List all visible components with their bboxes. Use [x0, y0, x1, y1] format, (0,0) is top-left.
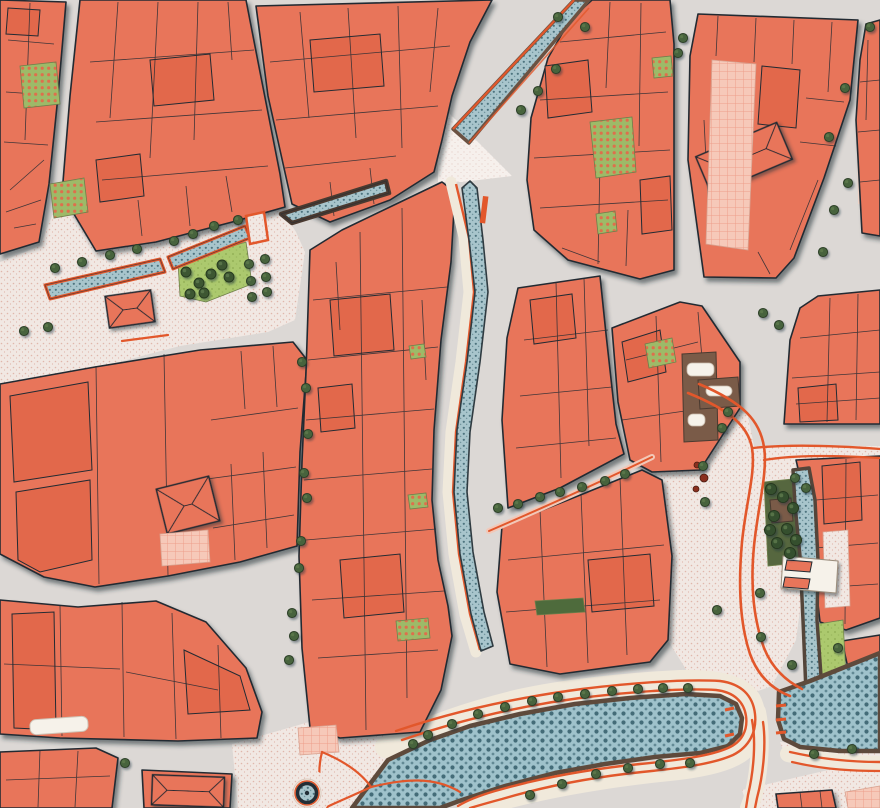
tree-highlight [826, 134, 829, 137]
lawn-dotted [50, 178, 88, 218]
block-central-west-of-canal [299, 182, 455, 738]
block-se-corner [776, 790, 836, 808]
tree-highlight [582, 24, 585, 27]
ramp-pool [246, 212, 268, 244]
bridge-roof [785, 560, 812, 572]
tree-highlight [249, 294, 252, 297]
tree-icon [284, 655, 293, 664]
tree-highlight [264, 289, 267, 292]
tree-icon [723, 407, 732, 416]
tree-highlight [786, 549, 790, 553]
tree-highlight [559, 781, 562, 784]
tree-icon [865, 22, 874, 31]
tree-icon [169, 236, 178, 245]
tree-icon [801, 483, 810, 492]
tree-icon [43, 322, 52, 331]
tree-highlight [246, 261, 249, 264]
tree-highlight [687, 760, 690, 763]
tree-highlight [758, 634, 761, 637]
tree-highlight [820, 249, 823, 252]
tree-icon [260, 254, 269, 263]
city-map[interactable] [0, 0, 880, 808]
tree-icon [580, 22, 589, 31]
tree-icon [551, 64, 560, 73]
tree-icon [209, 221, 218, 230]
tree-highlight [657, 761, 660, 764]
tree-highlight [502, 704, 505, 707]
tree-icon [181, 267, 191, 277]
tree-highlight [555, 14, 558, 17]
tree-highlight [593, 771, 596, 774]
tree-icon [105, 250, 114, 259]
block-central-west-of-canal [299, 182, 455, 738]
quay-steps [776, 705, 786, 706]
tree-icon [758, 308, 767, 317]
tree-icon [525, 790, 534, 799]
tree-highlight [770, 512, 774, 516]
tree-icon [217, 260, 227, 270]
tree-icon [607, 686, 616, 695]
tree-icon [620, 469, 629, 478]
tree-icon [809, 749, 818, 758]
lawn-dotted [396, 618, 430, 641]
tree-highlight [849, 746, 852, 749]
tree-highlight [187, 291, 191, 295]
tree-icon [301, 383, 310, 392]
tree-highlight [789, 662, 792, 665]
tree-highlight [425, 732, 428, 735]
tree-icon [199, 288, 209, 298]
tree-icon [685, 758, 694, 767]
tree-highlight [680, 35, 683, 38]
tree-highlight [515, 501, 518, 504]
building [798, 384, 838, 422]
tree-icon [712, 605, 721, 614]
tree-icon [774, 320, 783, 329]
tree-icon [19, 326, 28, 335]
tree-highlight [190, 231, 193, 234]
tree-highlight [867, 24, 870, 27]
tree-highlight [767, 485, 771, 489]
tree-highlight [291, 633, 294, 636]
building [6, 8, 40, 36]
tree-highlight [537, 494, 540, 497]
building [150, 54, 214, 106]
hip-roof-hall-south [151, 775, 224, 807]
tree-icon [287, 608, 296, 617]
tree-highlight [776, 322, 779, 325]
tree-icon [700, 497, 709, 506]
tree-highlight [134, 246, 137, 249]
tree-icon [557, 779, 566, 788]
building [310, 34, 384, 92]
tree-highlight [171, 238, 174, 241]
tree-icon [698, 461, 707, 470]
fountain-center [305, 791, 309, 795]
tree-icon [768, 510, 779, 521]
tree-icon [591, 769, 600, 778]
tree-highlight [582, 691, 585, 694]
tree-icon [577, 482, 586, 491]
tree-icon [246, 276, 255, 285]
sculpture-marker [693, 486, 699, 492]
tree-icon [513, 499, 522, 508]
tree-icon [829, 205, 838, 214]
tree-icon [473, 709, 482, 718]
garden-path [688, 414, 705, 426]
tree-highlight [201, 290, 205, 294]
tree-icon [533, 86, 542, 95]
tree-icon [764, 524, 775, 535]
tree-icon [247, 292, 256, 301]
tree-icon [233, 215, 242, 224]
building [96, 154, 144, 202]
tree-icon [289, 631, 298, 640]
tree-icon [77, 257, 86, 266]
tree-highlight [211, 223, 214, 226]
tree-highlight [660, 685, 663, 688]
tree-icon [120, 758, 129, 767]
building [822, 462, 862, 524]
tree-icon [553, 692, 562, 701]
tree-highlight [45, 324, 48, 327]
tree-highlight [579, 484, 582, 487]
tree-highlight [803, 485, 806, 488]
tree-icon [580, 689, 589, 698]
tree-icon [717, 423, 726, 432]
tree-icon [535, 492, 544, 501]
tree-highlight [303, 385, 306, 388]
building [12, 612, 56, 730]
tree-highlight [219, 262, 223, 266]
tree-icon [818, 247, 827, 256]
lawn-dotted [409, 344, 426, 359]
tree-highlight [196, 280, 200, 284]
tree-icon [765, 483, 776, 494]
tree-highlight [495, 505, 498, 508]
tree-icon [790, 473, 799, 482]
tree-icon [787, 660, 796, 669]
tree-icon [296, 536, 305, 545]
tree-highlight [700, 463, 703, 466]
courtyard-grid [160, 530, 210, 566]
tree-icon [678, 33, 687, 42]
tree-highlight [555, 694, 558, 697]
tree-icon [500, 702, 509, 711]
tree-icon [673, 48, 682, 57]
tree-highlight [557, 489, 560, 492]
tree-highlight [208, 271, 212, 275]
tree-highlight [289, 610, 292, 613]
tree-icon [781, 523, 792, 534]
tree-highlight [635, 686, 638, 689]
tree-icon [262, 287, 271, 296]
canal-bridge [781, 556, 838, 593]
tree-highlight [518, 107, 521, 110]
tree-highlight [527, 792, 530, 795]
tree-icon [658, 683, 667, 692]
tree-highlight [263, 274, 266, 277]
tree-icon [303, 429, 312, 438]
city-map-canvas [0, 0, 880, 808]
tree-highlight [792, 536, 796, 540]
tree-icon [302, 493, 311, 502]
tree-highlight [792, 475, 795, 478]
tree-highlight [831, 207, 834, 210]
tree-highlight [248, 278, 251, 281]
quay-steps [725, 708, 734, 710]
tree-icon [600, 476, 609, 485]
tree-highlight [675, 50, 678, 53]
tree-icon [188, 229, 197, 238]
tree-highlight [773, 539, 777, 543]
tree-highlight [725, 409, 728, 412]
tree-highlight [226, 274, 230, 278]
lawn-dotted [596, 211, 617, 234]
tree-icon [553, 12, 562, 21]
tree-highlight [685, 685, 688, 688]
courtyard-grid [706, 60, 756, 250]
quay-steps [776, 732, 786, 733]
tree-highlight [529, 698, 532, 701]
block-nw [62, 0, 285, 251]
quay-steps [725, 734, 734, 736]
tree-icon [833, 643, 842, 652]
tree-icon [132, 244, 141, 253]
tree-icon [683, 683, 692, 692]
tree-icon [299, 468, 308, 477]
building [318, 384, 355, 432]
tree-highlight [714, 607, 717, 610]
tree-highlight [183, 269, 187, 273]
tree-highlight [622, 471, 625, 474]
tree-highlight [296, 565, 299, 568]
tree-highlight [301, 470, 304, 473]
tree-icon [777, 491, 788, 502]
tree-icon [516, 105, 525, 114]
tree-icon [408, 739, 417, 748]
building [16, 480, 92, 572]
hedge-strip [535, 598, 585, 615]
tree-icon [756, 632, 765, 641]
block-se-corner [776, 790, 836, 808]
building [10, 382, 92, 482]
tree-icon [194, 278, 204, 288]
tree-highlight [262, 256, 265, 259]
sculpture-marker [700, 474, 708, 482]
lawn-dotted [590, 117, 636, 178]
tree-highlight [535, 88, 538, 91]
tree-highlight [235, 217, 238, 220]
tree-icon [224, 272, 234, 282]
tree-highlight [122, 760, 125, 763]
tree-highlight [811, 751, 814, 754]
tree-highlight [835, 645, 838, 648]
tree-highlight [449, 721, 452, 724]
tree-highlight [299, 359, 302, 362]
tree-highlight [757, 590, 760, 593]
tree-highlight [305, 431, 308, 434]
tree-icon [784, 547, 795, 558]
kiosk-pavilion [105, 290, 155, 328]
tree-icon [50, 263, 59, 272]
tree-icon [843, 178, 852, 187]
tree-highlight [21, 328, 24, 331]
tree-icon [527, 696, 536, 705]
tree-highlight [766, 526, 770, 530]
block-superblock-west [0, 342, 307, 587]
tree-highlight [52, 265, 55, 268]
building [758, 66, 800, 128]
tree-icon [493, 503, 502, 512]
quay-steps [776, 719, 786, 720]
tree-icon [771, 537, 782, 548]
block-nw [62, 0, 285, 251]
tree-highlight [842, 85, 845, 88]
tree-highlight [779, 493, 783, 497]
tree-icon [655, 759, 664, 768]
bridge-roof [783, 577, 810, 589]
tree-highlight [475, 711, 478, 714]
lawn-dotted [652, 56, 673, 78]
tree-highlight [702, 499, 705, 502]
tree-icon [423, 730, 432, 739]
tree-highlight [760, 310, 763, 313]
tree-highlight [553, 66, 556, 69]
tree-highlight [298, 538, 301, 541]
tree-icon [824, 132, 833, 141]
lawn-dotted [408, 493, 428, 509]
tree-icon [297, 357, 306, 366]
tree-icon [840, 83, 849, 92]
tree-highlight [783, 525, 787, 529]
tree-highlight [719, 425, 722, 428]
tree-icon [847, 744, 856, 753]
tree-highlight [609, 688, 612, 691]
garden-path [687, 363, 714, 376]
building [340, 554, 404, 618]
tree-icon [244, 259, 253, 268]
tree-icon [261, 272, 270, 281]
tree-highlight [789, 504, 793, 508]
tree-icon [633, 684, 642, 693]
tree-icon [755, 588, 764, 597]
tree-highlight [625, 765, 628, 768]
tree-highlight [410, 741, 413, 744]
tree-icon [206, 269, 216, 279]
tree-icon [185, 289, 195, 299]
tree-highlight [304, 495, 307, 498]
tree-highlight [286, 657, 289, 660]
tree-highlight [79, 259, 82, 262]
tree-icon [623, 763, 632, 772]
lawn-dotted [20, 62, 60, 108]
building [640, 176, 672, 234]
tree-highlight [845, 180, 848, 183]
tree-icon [555, 487, 564, 496]
tree-icon [790, 534, 801, 545]
tree-icon [294, 563, 303, 572]
courtyard-grid [298, 725, 339, 755]
tree-highlight [107, 252, 110, 255]
block-s-corner-1 [0, 748, 118, 808]
tree-icon [787, 502, 798, 513]
tree-highlight [602, 478, 605, 481]
tree-icon [447, 719, 456, 728]
